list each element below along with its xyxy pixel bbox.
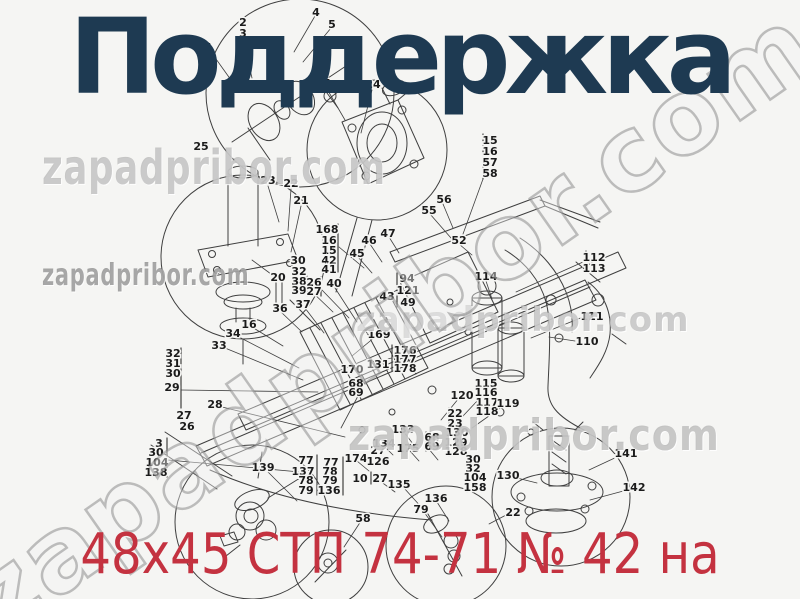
part-label: 39 <box>291 284 306 297</box>
part-label: 41 <box>321 263 336 276</box>
part-label: 36 <box>272 302 288 315</box>
part-label: 10 <box>352 472 368 485</box>
part-label: 79 <box>413 503 428 516</box>
part-label: 47 <box>380 227 395 240</box>
watermark-text: zapadpribor.com <box>42 258 249 293</box>
part-label: 79 <box>298 484 313 497</box>
part-label: 158 <box>464 481 487 494</box>
caption-text: 48х45 СТП 74-71 № 42 на рис. <box>56 522 744 599</box>
part-label: 29 <box>164 381 179 394</box>
part-label: 136 <box>318 484 341 497</box>
part-label: 33 <box>211 339 226 352</box>
part-label: 113 <box>583 262 606 275</box>
part-label: 16 <box>241 318 257 331</box>
part-label: 46 <box>361 234 377 247</box>
part-label: 22 <box>505 506 520 519</box>
part-label: 119 <box>497 397 520 410</box>
watermark-text: zapadpribor.com <box>348 410 720 461</box>
watermark-text: zapadpribor.com <box>42 140 386 196</box>
part-label: 30 <box>165 367 181 380</box>
part-label: 135 <box>388 478 411 491</box>
page-title: Поддержка <box>0 0 800 118</box>
part-label: 120 <box>451 389 474 402</box>
part-label: 34 <box>225 327 241 340</box>
part-label: 45 <box>349 247 364 260</box>
part-label: 130 <box>497 469 520 482</box>
part-label: 142 <box>623 481 646 494</box>
part-label: 20 <box>270 271 286 284</box>
part-label: 27 <box>372 472 387 485</box>
product-image: 1234552425232221201516575856555247464516… <box>0 0 800 599</box>
